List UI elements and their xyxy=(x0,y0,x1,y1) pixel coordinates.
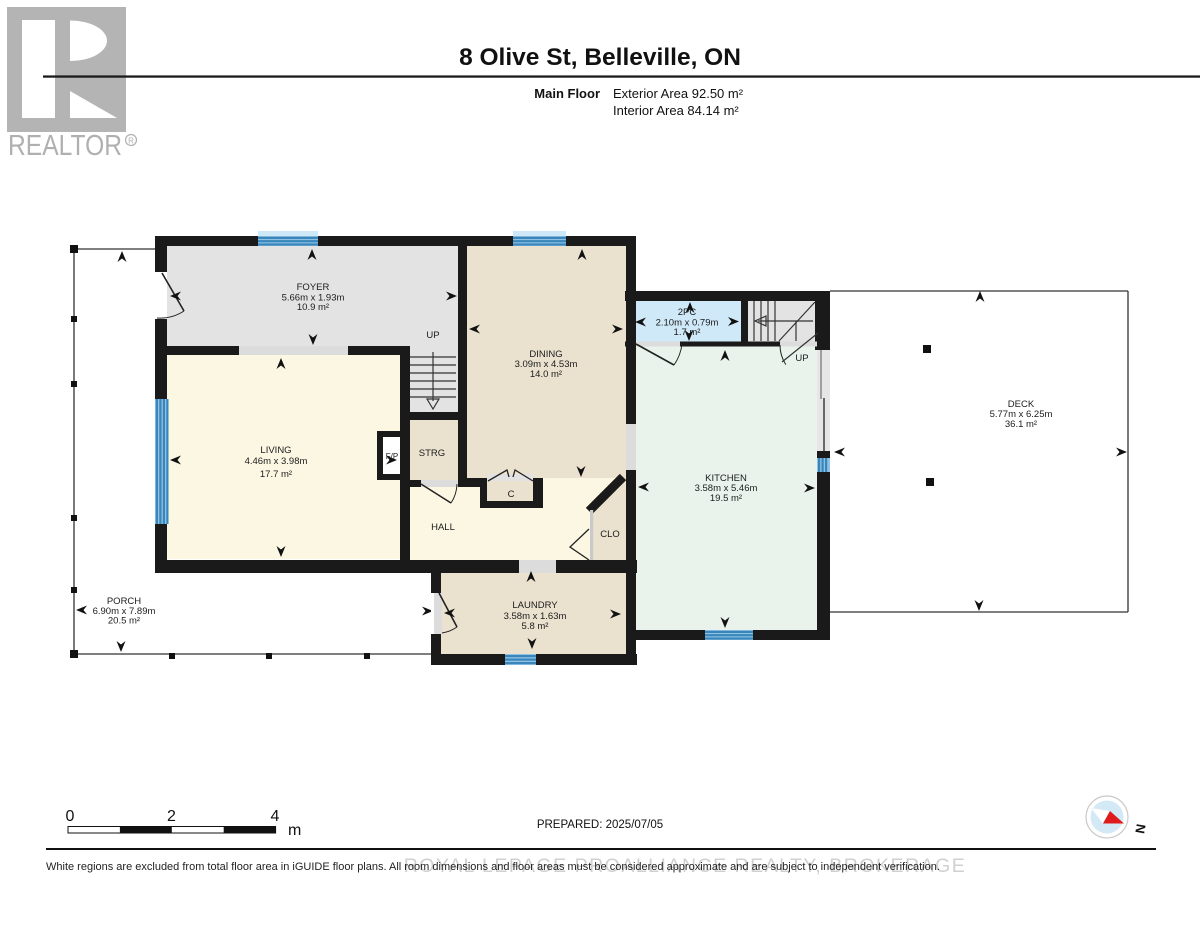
svg-text:0: 0 xyxy=(66,808,75,825)
svg-text:UP: UP xyxy=(795,353,808,364)
svg-text:19.5 m²: 19.5 m² xyxy=(710,493,742,504)
svg-text:FOYER: FOYER xyxy=(297,282,330,293)
svg-text:17.7 m²: 17.7 m² xyxy=(260,469,292,480)
svg-text:R: R xyxy=(128,137,134,146)
svg-text:10.9 m²: 10.9 m² xyxy=(297,302,329,313)
svg-text:HALL: HALL xyxy=(431,522,455,533)
svg-text:20.5 m²: 20.5 m² xyxy=(108,616,140,627)
svg-text:36.1 m²: 36.1 m² xyxy=(1005,419,1037,430)
svg-text:8 Olive St, Belleville, ON: 8 Olive St, Belleville, ON xyxy=(459,44,741,71)
svg-text:4: 4 xyxy=(271,808,280,825)
svg-text:STRG: STRG xyxy=(419,448,445,459)
svg-text:White regions are excluded fro: White regions are excluded from total fl… xyxy=(46,861,940,873)
svg-text:CLO: CLO xyxy=(600,529,620,540)
svg-text:14.0 m²: 14.0 m² xyxy=(530,369,562,380)
svg-text:LIVING: LIVING xyxy=(260,445,291,456)
svg-text:m: m xyxy=(288,822,301,839)
svg-text:REALTOR: REALTOR xyxy=(8,130,122,162)
svg-text:PREPARED: 2025/07/05: PREPARED: 2025/07/05 xyxy=(537,819,663,831)
svg-text:Interior Area 84.14 m²: Interior Area 84.14 m² xyxy=(613,103,739,118)
svg-text:LAUNDRY: LAUNDRY xyxy=(512,600,558,611)
svg-text:C: C xyxy=(508,489,515,500)
svg-text:Exterior Area 92.50 m²: Exterior Area 92.50 m² xyxy=(613,86,744,101)
svg-text:4.46m x 3.98m: 4.46m x 3.98m xyxy=(245,456,308,467)
svg-text:2PC: 2PC xyxy=(678,307,697,318)
svg-text:2: 2 xyxy=(167,808,176,825)
svg-text:5.8 m²: 5.8 m² xyxy=(522,621,549,632)
svg-text:UP: UP xyxy=(426,330,439,341)
svg-text:Main Floor: Main Floor xyxy=(534,86,600,101)
svg-text:F/P: F/P xyxy=(386,452,398,461)
